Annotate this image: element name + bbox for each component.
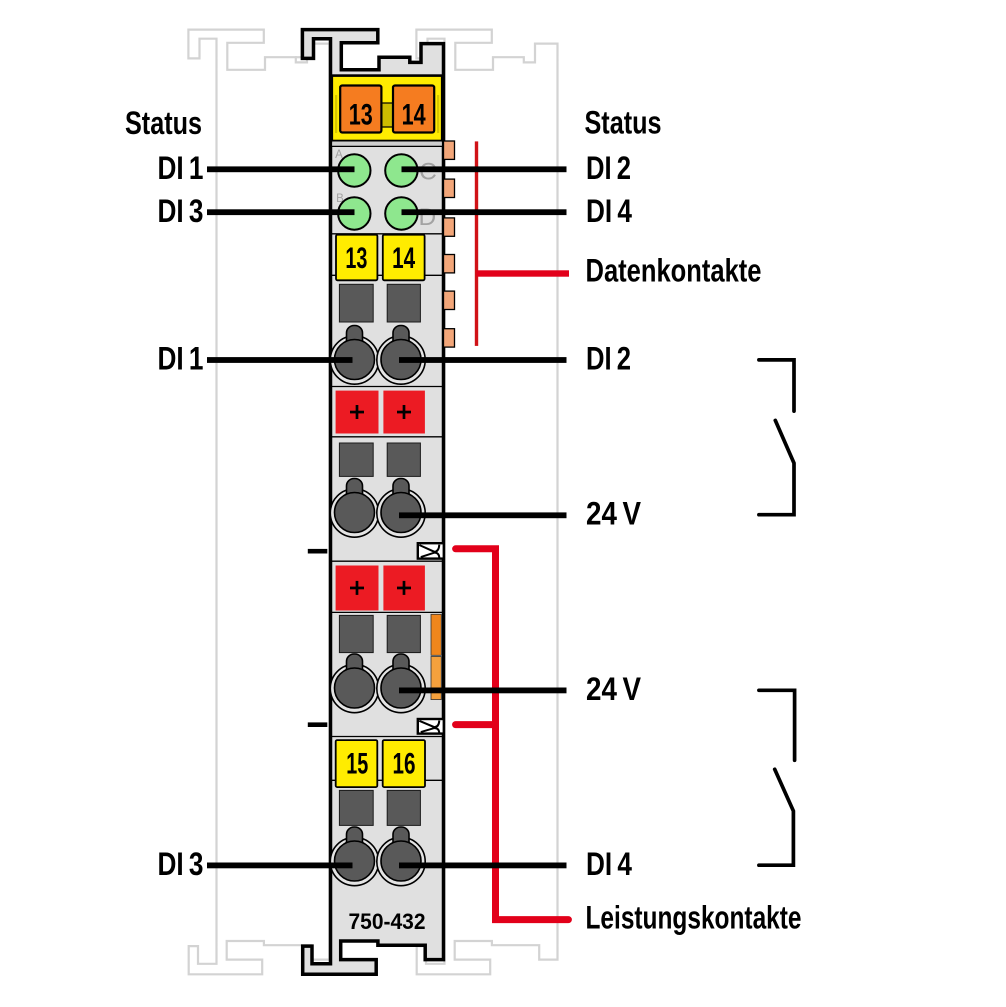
svg-text:DI 3: DI 3 <box>158 193 204 229</box>
svg-text:DI 1: DI 1 <box>158 341 204 377</box>
svg-text:13: 13 <box>345 242 367 275</box>
svg-text:DI 1: DI 1 <box>158 150 204 186</box>
svg-text:Status: Status <box>125 105 202 141</box>
svg-text:DI 4: DI 4 <box>586 846 632 882</box>
svg-text:14: 14 <box>402 98 426 131</box>
svg-text:14: 14 <box>392 242 415 275</box>
svg-text:Status: Status <box>585 105 662 141</box>
svg-text:13: 13 <box>349 98 373 131</box>
svg-text:DI 4: DI 4 <box>586 193 632 229</box>
svg-text:16: 16 <box>393 748 416 781</box>
svg-text:DI 3: DI 3 <box>158 846 204 882</box>
svg-text:Datenkontakte: Datenkontakte <box>586 253 762 289</box>
svg-text:DI 2: DI 2 <box>586 150 631 186</box>
svg-text:D: D <box>419 204 437 231</box>
svg-text:15: 15 <box>346 748 368 781</box>
svg-text:24 V: 24 V <box>586 496 641 532</box>
svg-text:750-432: 750-432 <box>349 909 426 934</box>
svg-text:DI 2: DI 2 <box>586 341 631 377</box>
svg-text:24 V: 24 V <box>586 671 641 707</box>
svg-text:Leistungskontakte: Leistungskontakte <box>586 900 802 936</box>
